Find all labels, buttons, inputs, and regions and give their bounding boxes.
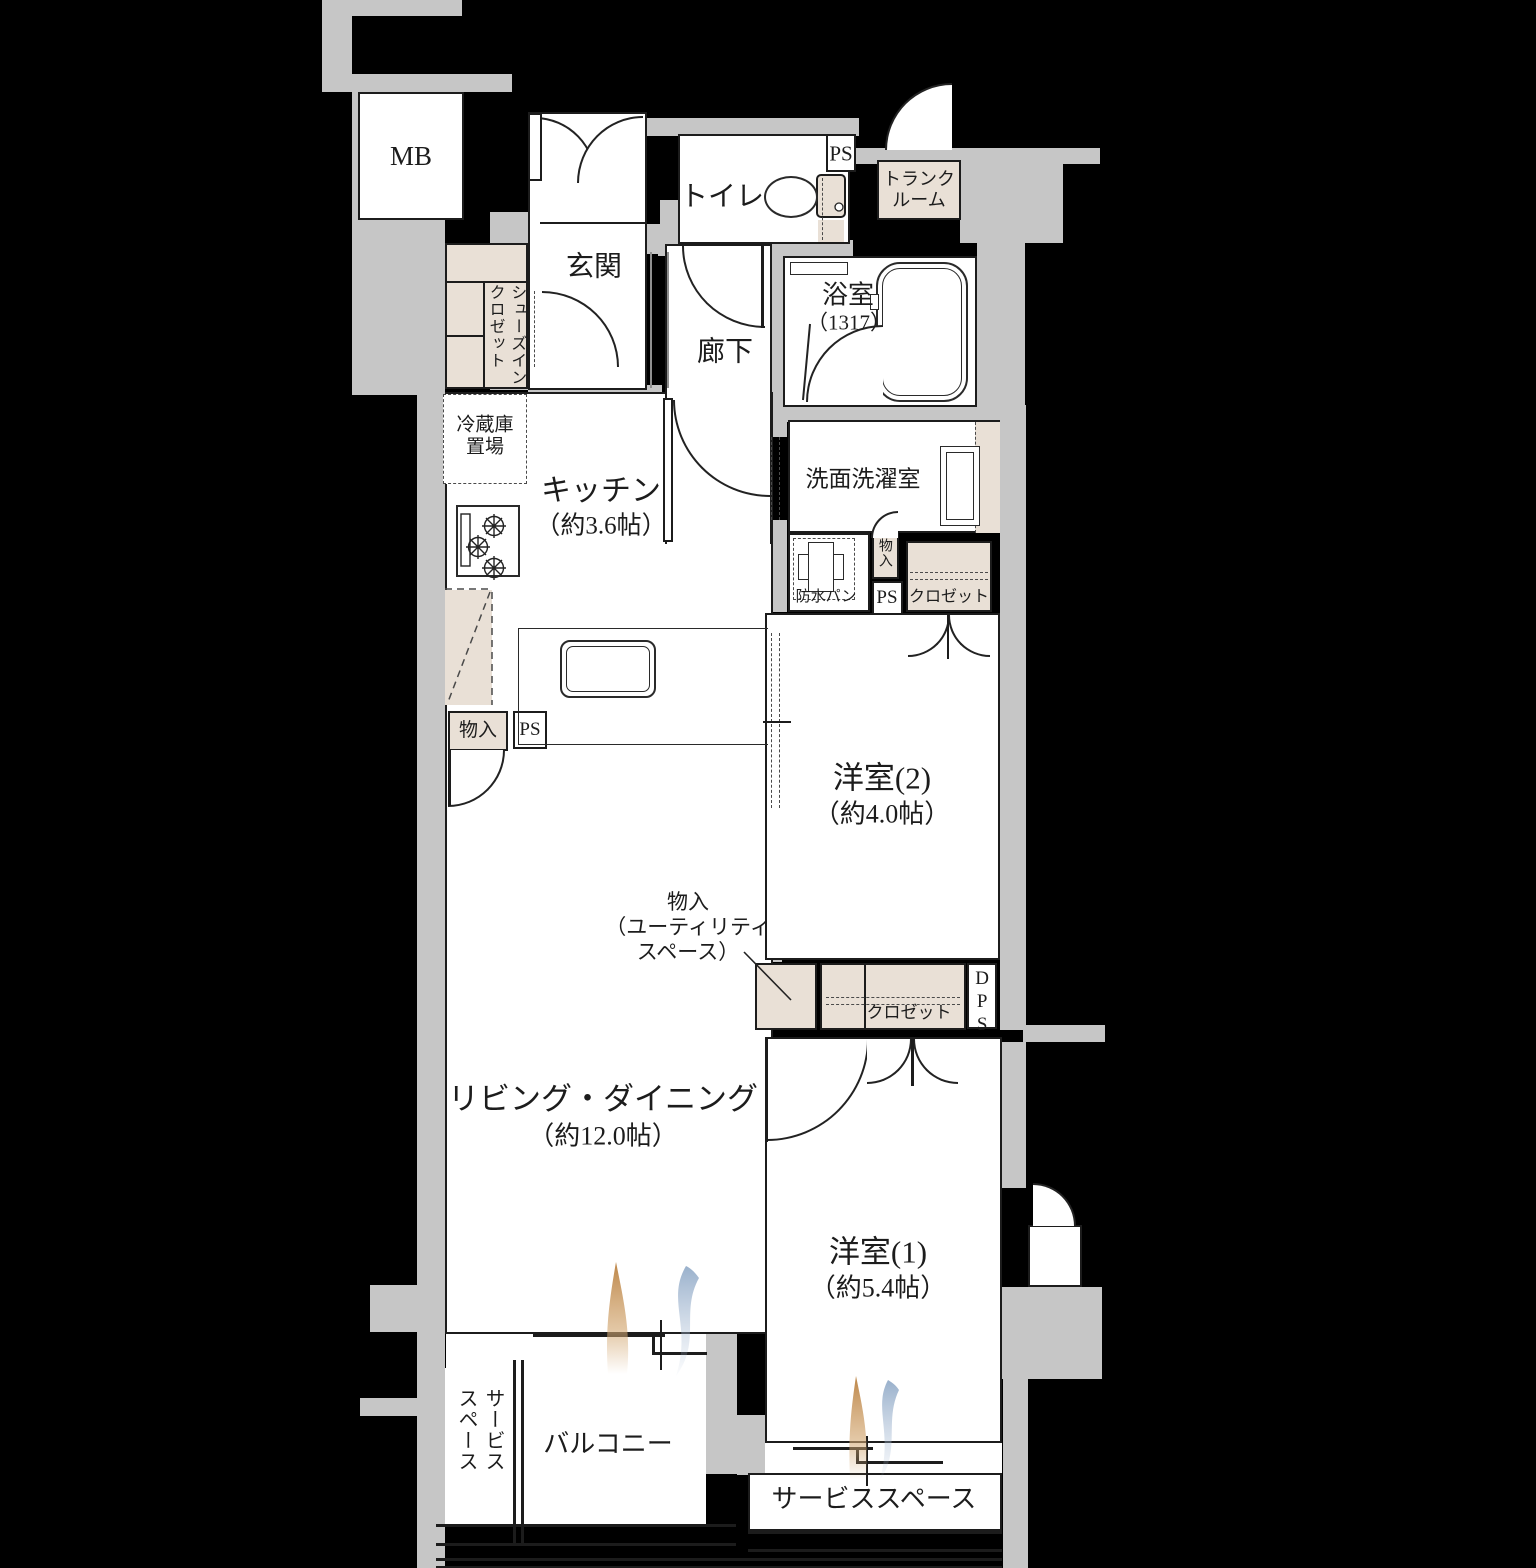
- label-trunk-room: トランク ルーム: [883, 169, 955, 211]
- label-closet-low: クロゼット: [867, 1003, 952, 1023]
- wall: [706, 1332, 737, 1474]
- toilet-tank: [816, 174, 846, 218]
- toilet-dashed-line: [822, 178, 823, 240]
- living-window-joint: [652, 1334, 655, 1354]
- shoes-closet-divider: [445, 281, 528, 283]
- closet-low-rail: [826, 997, 960, 998]
- washer-pan-plus-v: [808, 542, 834, 592]
- storage-utility-box: [755, 963, 817, 1030]
- western1-window-tick: [866, 1436, 868, 1486]
- label-service-bottom: サービススペース: [772, 1485, 977, 1516]
- wall: [1000, 1042, 1026, 1188]
- trunk-door-arc: [885, 83, 952, 150]
- entrance-hall-line: [650, 252, 652, 388]
- service-fence-bottom: [748, 1549, 1002, 1552]
- label-corridor: 廊下: [697, 335, 753, 368]
- partition-dashed: [771, 437, 772, 520]
- label-balcony: バルコニー: [543, 1430, 672, 1461]
- label-waterproof-pan: 防水パン: [796, 589, 857, 607]
- wall: [960, 160, 1063, 243]
- closet-mid-rail: [910, 579, 988, 580]
- wall: [417, 393, 445, 1272]
- label-shoes-closet: シューズイン クロゼット: [484, 284, 527, 394]
- western1-window-joint: [856, 1447, 859, 1463]
- label-western1: 洋室(1): [829, 1235, 927, 1272]
- storage-kitchen-door-leaf: [448, 750, 451, 806]
- partition-dashed: [779, 437, 780, 520]
- label-toilet: トイレ: [680, 180, 764, 213]
- living-window-tick: [660, 1320, 662, 1370]
- wall: [1023, 1025, 1105, 1042]
- exterior-door-arc: [1033, 1183, 1076, 1226]
- floorplan-canvas: MB 玄関 シューズイン クロゼット トイレ PS トランク ルーム 浴室 （1…: [0, 0, 1536, 1568]
- closet-mid-door-leaf: [947, 615, 949, 659]
- label-ps-toilet: PS: [829, 142, 852, 167]
- bath-counter: [790, 262, 848, 275]
- washstand-bowl: [946, 452, 974, 520]
- toilet-bowl: [764, 176, 818, 218]
- label-western1-size: （約5.4帖）: [810, 1274, 947, 1305]
- label-service-left: サービス スペース: [452, 1388, 506, 1538]
- label-ps-kitchen: PS: [519, 719, 540, 741]
- stove: [456, 505, 520, 577]
- wall: [1000, 1287, 1102, 1379]
- label-bath-size: （1317）: [807, 311, 891, 336]
- kitchen-counter-corner: [445, 590, 492, 705]
- entrance-step-line: [540, 222, 645, 224]
- western1-door-leaf: [765, 1039, 768, 1142]
- toilet-door-leaf: [761, 246, 764, 328]
- label-storage-washroom: 物入: [874, 538, 893, 568]
- partition-tick: [763, 721, 791, 723]
- entrance-hall-line: [667, 252, 669, 388]
- balcony-fence-left: [521, 1360, 524, 1546]
- wall: [360, 1398, 418, 1416]
- label-living: リビング・ダイニング: [448, 1082, 758, 1119]
- shoes-closet-door-leaf: [534, 291, 535, 367]
- balcony-fence-bottom: [436, 1543, 736, 1546]
- service-fence-bottom: [748, 1531, 1002, 1534]
- label-ps-washroom: PS: [876, 587, 897, 609]
- label-living-size: （約12.0帖）: [528, 1122, 678, 1153]
- balcony-fence-left: [513, 1360, 516, 1546]
- wall: [417, 1330, 445, 1568]
- label-entrance: 玄関: [566, 250, 622, 283]
- closet-mid-rail: [910, 572, 988, 573]
- western1-window-line: [856, 1461, 943, 1464]
- label-dps: DPS: [969, 968, 995, 1037]
- bathtub-inner: [882, 268, 962, 396]
- wall: [1000, 405, 1026, 1030]
- shoes-closet-divider: [445, 335, 485, 337]
- label-closet-mid: クロゼット: [909, 589, 989, 608]
- outer-rail: [436, 1558, 1002, 1561]
- wall: [1003, 1379, 1028, 1568]
- label-fridge: 冷蔵庫 置場: [456, 415, 513, 460]
- kitchen-sink-inner: [566, 646, 650, 692]
- living-window-line: [533, 1334, 665, 1337]
- label-western2-size: （約4.0帖）: [814, 800, 951, 831]
- wall-post: [772, 520, 787, 612]
- label-bath: 浴室: [822, 281, 874, 312]
- label-washroom: 洗面洗濯室: [806, 465, 921, 492]
- label-kitchen: キッチン: [541, 473, 661, 508]
- label-storage-kitchen: 物入: [459, 720, 497, 742]
- western1-window-line: [793, 1447, 873, 1450]
- label-storage-utility: 物入 （ユーティリティ スペース）: [605, 890, 770, 964]
- wall: [977, 243, 1025, 409]
- exterior-door-bay: [1028, 1225, 1082, 1287]
- label-meter-box: MB: [390, 141, 432, 173]
- label-kitchen-size: （約3.6帖）: [535, 511, 666, 541]
- closet-low-door-leaf: [911, 1039, 914, 1086]
- label-western2: 洋室(2): [833, 761, 931, 798]
- entry-door-leaf: [528, 113, 542, 181]
